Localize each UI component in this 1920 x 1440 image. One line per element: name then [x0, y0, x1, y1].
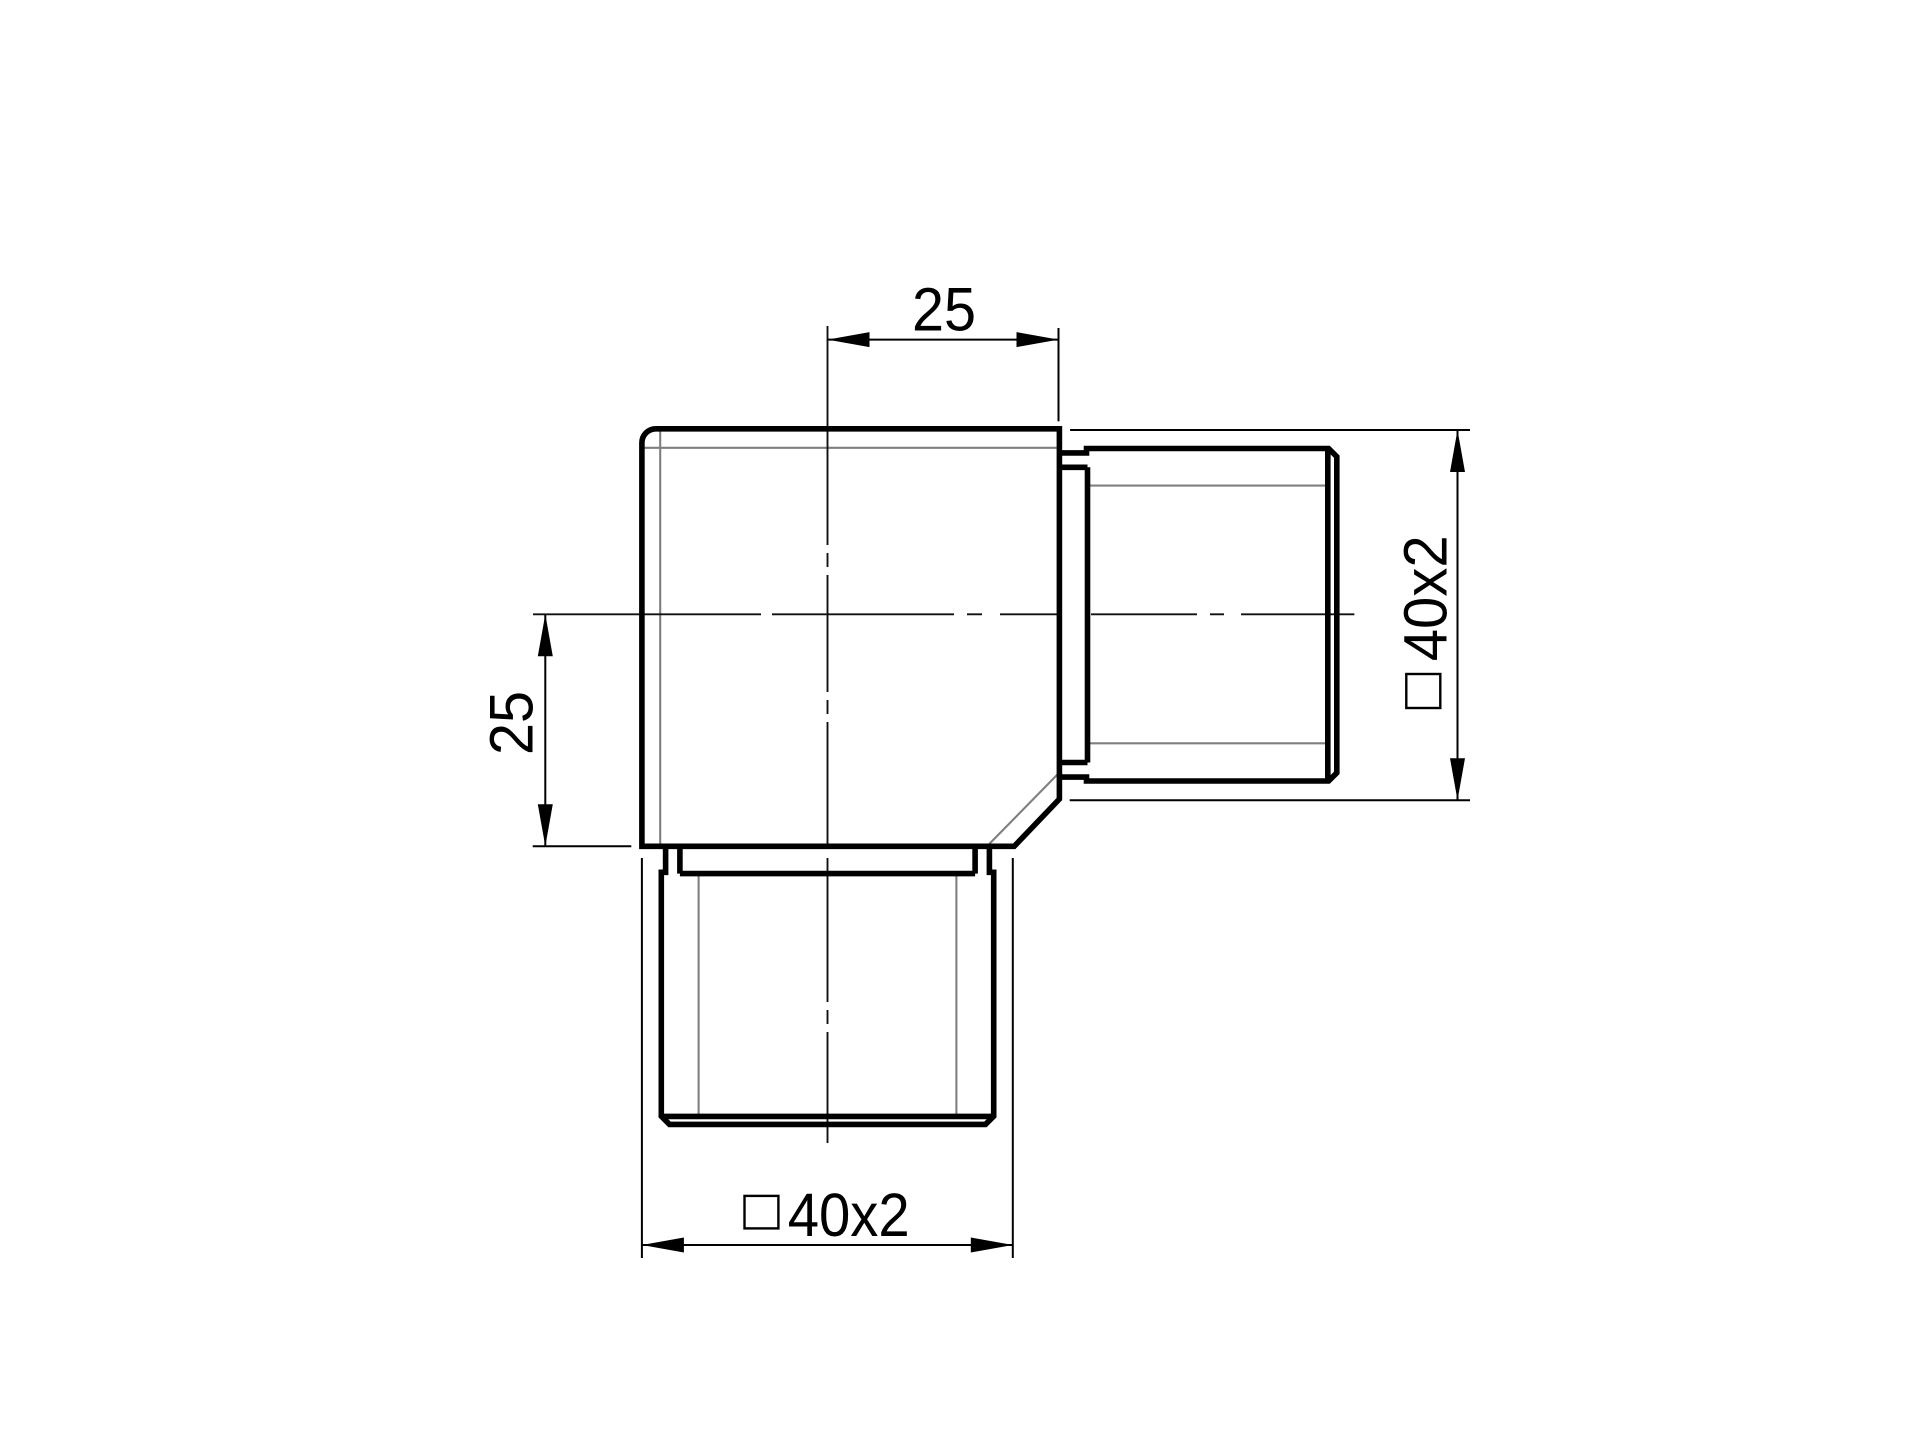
svg-text:25: 25	[478, 691, 546, 755]
svg-text:40x2: 40x2	[788, 1181, 910, 1249]
svg-text:40x2: 40x2	[1392, 535, 1460, 661]
svg-text:25: 25	[912, 276, 976, 344]
